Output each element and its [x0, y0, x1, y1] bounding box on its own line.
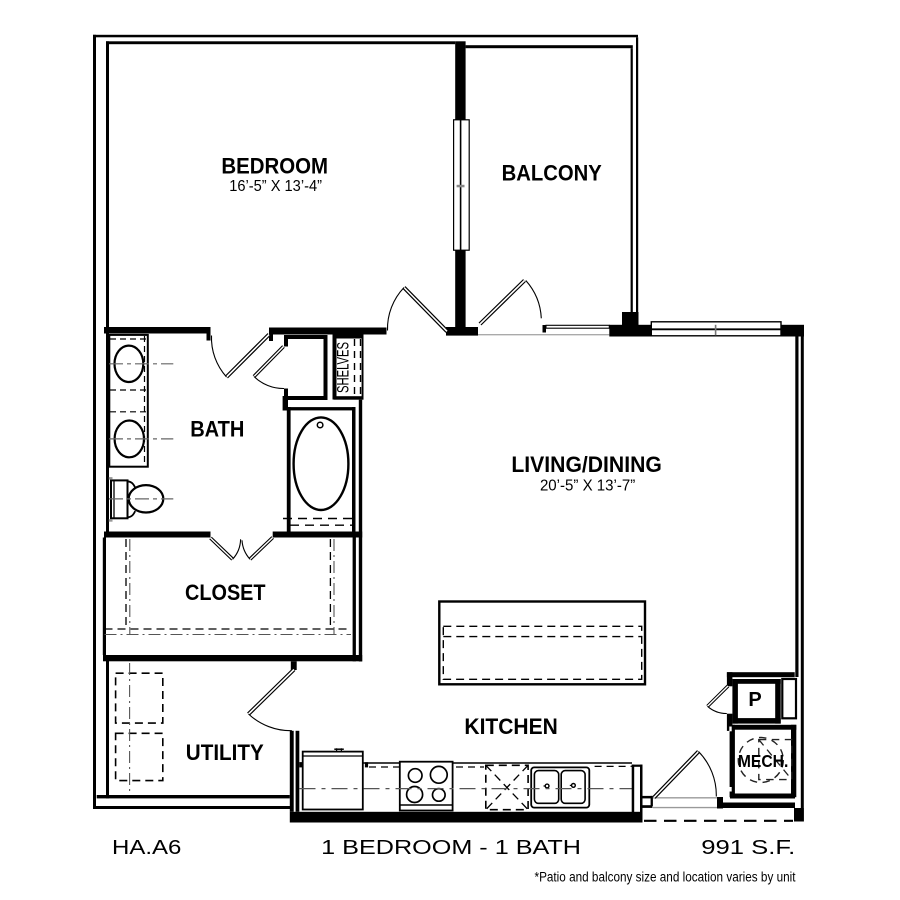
svg-text:*Patio and balcony size and lo: *Patio and balcony size and location var…	[535, 870, 796, 885]
svg-text:BEDROOM: BEDROOM	[221, 153, 328, 178]
svg-text:KITCHEN: KITCHEN	[464, 714, 557, 739]
svg-text:LIVING/DINING: LIVING/DINING	[511, 452, 661, 477]
svg-text:BALCONY: BALCONY	[502, 161, 602, 186]
svg-text:CLOSET: CLOSET	[185, 580, 266, 605]
svg-text:SHELVES: SHELVES	[334, 342, 353, 393]
svg-text:991 S.F.: 991 S.F.	[701, 837, 795, 859]
svg-text:MECH.: MECH.	[738, 751, 788, 771]
svg-text:P: P	[748, 689, 761, 711]
svg-text:UTILITY: UTILITY	[186, 740, 264, 765]
svg-text:1 BEDROOM - 1 BATH: 1 BEDROOM - 1 BATH	[321, 837, 581, 859]
svg-text:HA.A6: HA.A6	[112, 837, 181, 859]
svg-text:16’-5” X 13’-4”: 16’-5” X 13’-4”	[229, 178, 322, 195]
svg-text:20’-5” X 13’-7”: 20’-5” X 13’-7”	[540, 478, 635, 495]
svg-text:BATH: BATH	[190, 417, 244, 442]
